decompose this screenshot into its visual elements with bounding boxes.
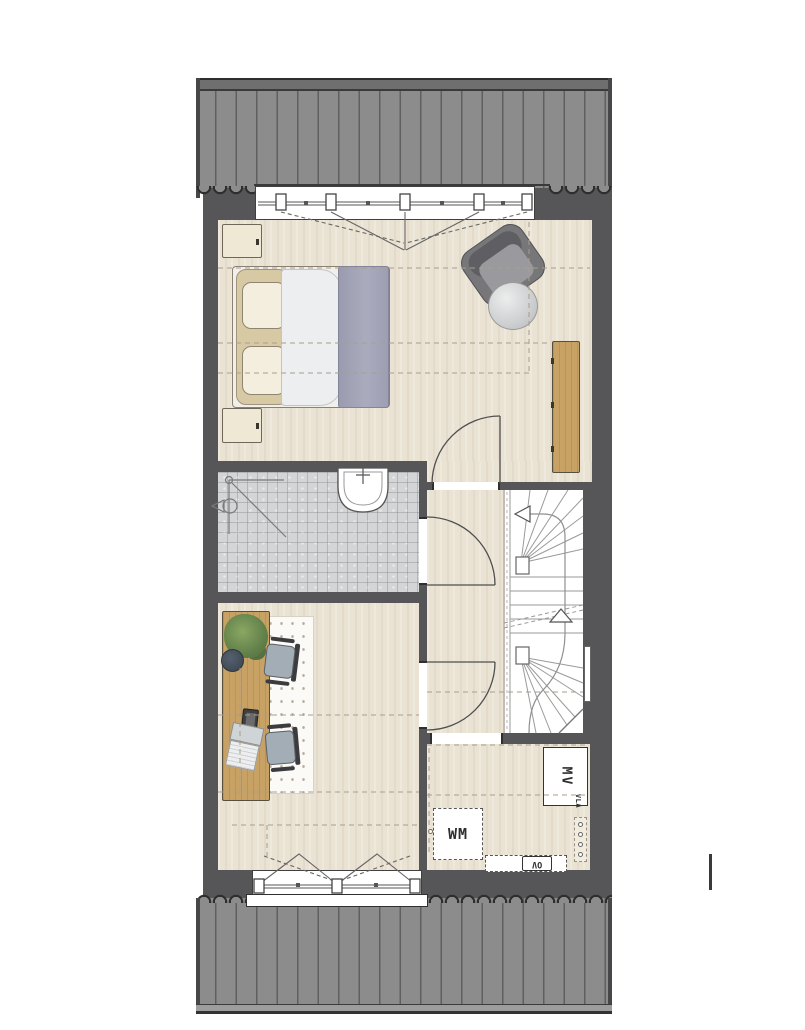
bathroom-door-threshold	[419, 517, 427, 585]
wm-label: WM	[448, 825, 468, 843]
office-door-threshold	[419, 661, 427, 729]
roof-bottom-field	[196, 898, 612, 1004]
roof-top-ridge	[196, 78, 612, 91]
side-table	[488, 282, 538, 330]
roof-bottom-tile-edge-left	[196, 891, 252, 903]
ov-unit: OV	[522, 856, 552, 871]
bed-blanket	[338, 266, 389, 408]
stair-wall-niche	[584, 646, 591, 702]
vla-label: VLA	[574, 794, 582, 808]
roof-bottom-tile-edge-right	[428, 891, 612, 903]
bed-pillow	[242, 346, 286, 395]
nightstand	[222, 224, 262, 258]
pipe-shaft	[574, 817, 587, 862]
nightstand	[222, 408, 262, 443]
roof-top-tile-edge-right	[548, 186, 612, 198]
wm-connection-point	[428, 829, 433, 834]
window-top	[255, 186, 535, 220]
mv-label: MV	[558, 767, 573, 787]
floor-plan: MV WM OV VLA	[0, 0, 805, 1030]
roof-bottom-footer	[196, 1004, 612, 1014]
vla-hatch: VLA	[570, 786, 586, 816]
bed-duvet	[281, 269, 342, 406]
bedroom-door-threshold	[432, 482, 500, 490]
bathroom-floor	[218, 472, 419, 592]
window-bottom-sill	[246, 894, 428, 907]
section-mark	[709, 854, 712, 890]
window-bottom	[252, 870, 422, 896]
wardrobe	[552, 341, 580, 473]
roof-bottom-edge-left	[196, 898, 200, 1004]
staircase	[505, 490, 583, 733]
roof-top-edge-right	[608, 78, 612, 198]
ov-label: OV	[532, 859, 542, 869]
desk-stool	[221, 649, 244, 672]
roof-bottom-edge-right	[608, 898, 612, 1004]
roof-top-edge-left	[196, 78, 200, 198]
bed-pillow	[242, 282, 286, 329]
office-chair	[262, 721, 304, 774]
office-chair	[260, 635, 304, 689]
wm-unit: WM	[433, 808, 483, 860]
hall-floor	[427, 490, 505, 733]
roof-top-field	[196, 91, 612, 188]
roof-top-tile-edge-left	[196, 186, 256, 198]
tech-room-opening	[430, 733, 503, 744]
